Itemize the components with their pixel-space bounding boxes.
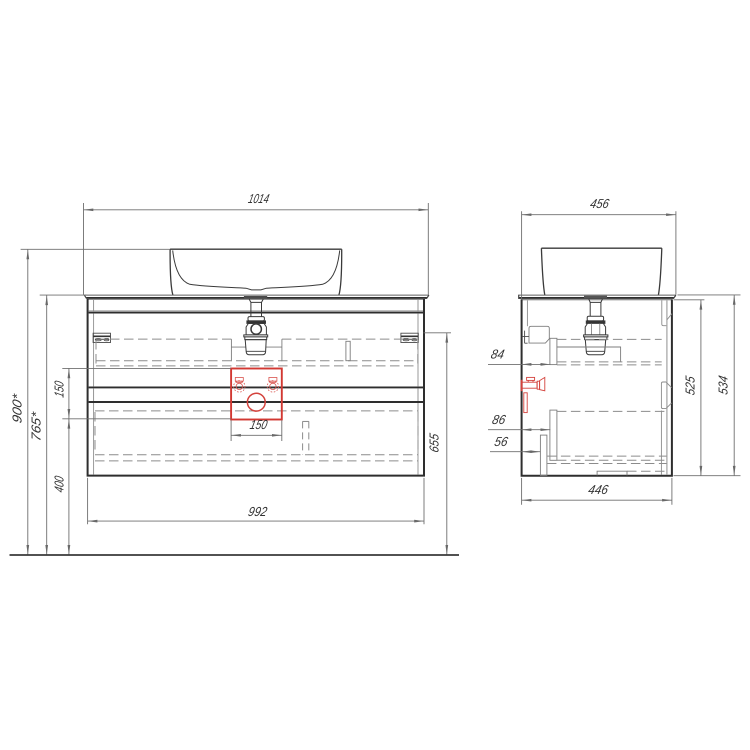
svg-text:446: 446	[587, 482, 610, 497]
svg-text:534: 534	[716, 374, 731, 396]
svg-text:456: 456	[589, 196, 611, 211]
svg-text:655: 655	[427, 432, 442, 454]
svg-text:525: 525	[683, 374, 698, 396]
svg-text:900*: 900*	[10, 392, 25, 425]
svg-text:765*: 765*	[29, 410, 44, 443]
svg-text:992: 992	[247, 504, 269, 519]
svg-text:1014: 1014	[247, 191, 271, 206]
